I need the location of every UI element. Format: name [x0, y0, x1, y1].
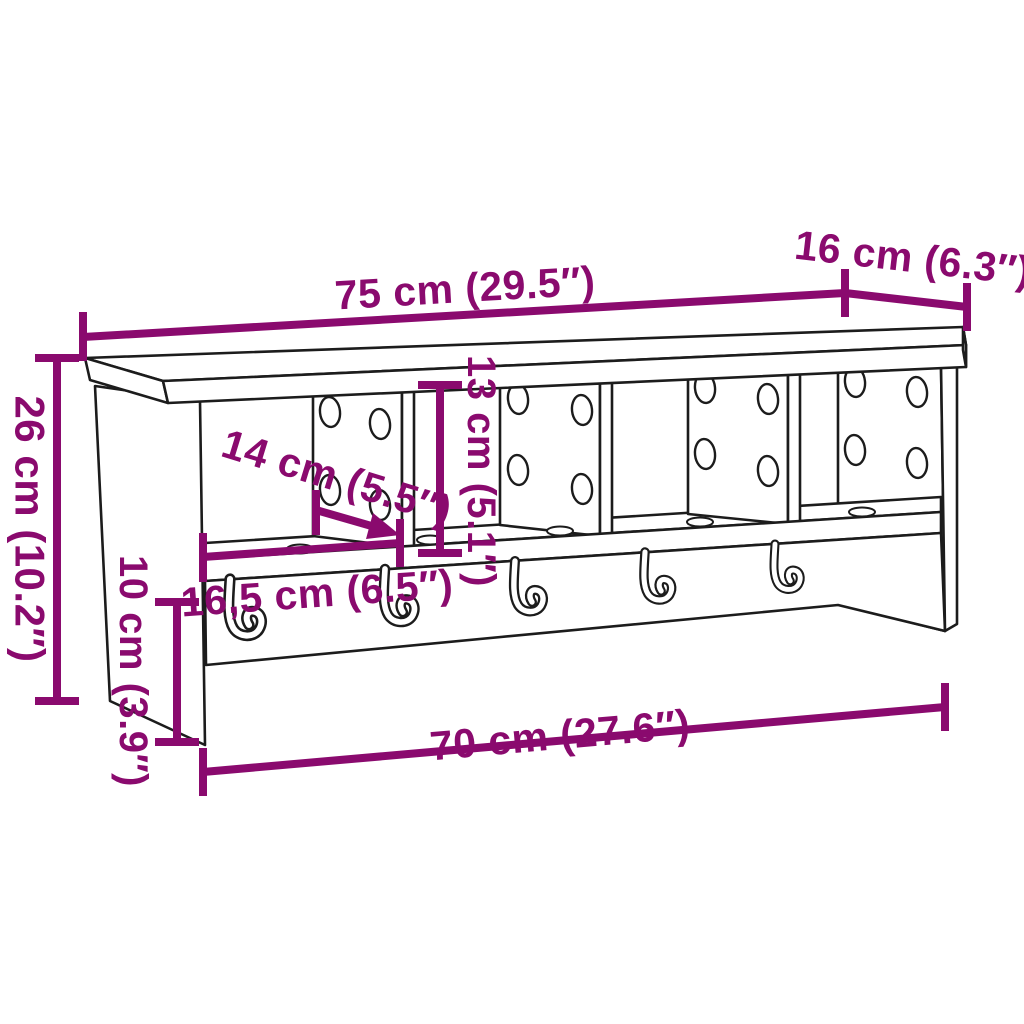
furniture-dimension-diagram: 75 cm (29.5″) 16 cm (6.3″) 26 cm (10.2″)… [0, 0, 1024, 1024]
depth-label: 16 cm (6.3″) [792, 222, 1024, 295]
diagram-canvas: 75 cm (29.5″) 16 cm (6.3″) 26 cm (10.2″)… [0, 0, 1024, 1024]
inner-width-label: 70 cm (27.6″) [428, 701, 692, 770]
rail-height-label: 10 cm (3.9″) [111, 555, 155, 787]
compartment-height-label: 13 cm (5.1″) [459, 355, 503, 587]
dimension-inner-width: 70 cm (27.6″) [203, 683, 945, 796]
divider-panel-2 [500, 378, 612, 536]
divider-panel-3 [688, 369, 800, 524]
dimension-total-height: 26 cm (10.2″) [7, 358, 80, 701]
dimension-depth: 16 cm (6.3″) [792, 222, 1024, 331]
total-height-label: 26 cm (10.2″) [7, 395, 54, 662]
right-panel-front-edge [941, 365, 957, 631]
coat-rack-drawing [85, 327, 966, 745]
